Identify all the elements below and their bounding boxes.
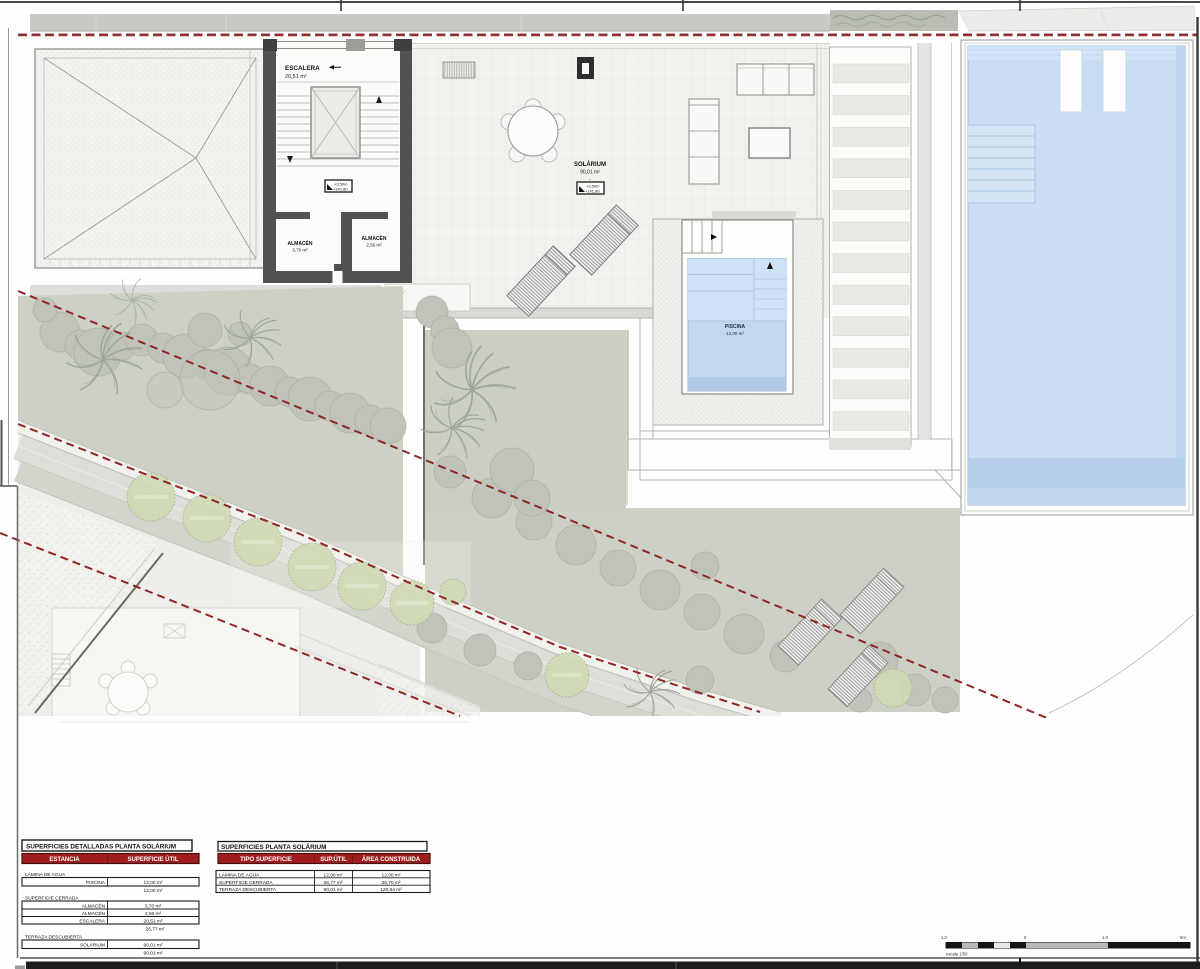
svg-text:ESTANCIA: ESTANCIA: [49, 857, 80, 863]
svg-text:LÁMINA DE AGUA: LÁMINA DE AGUA: [219, 871, 260, 878]
svg-text:90,01 m²: 90,01 m²: [324, 887, 343, 893]
svg-text:1,0: 1,0: [1102, 935, 1108, 940]
svg-text:SUPERFICIES DETALLADAS PLANTA: SUPERFICIES DETALLADAS PLANTA SOLÁRIUM: [26, 842, 176, 851]
svg-text:26,77 m²: 26,77 m²: [324, 880, 343, 886]
svg-text:TERRAZA DESCUBIERTA: TERRAZA DESCUBIERTA: [219, 887, 277, 893]
svg-text:SUPERFICIE ÚTIL: SUPERFICIE ÚTIL: [127, 856, 178, 863]
svg-text:2,56 m²: 2,56 m²: [145, 911, 162, 917]
svg-text:12,00 m²: 12,00 m²: [324, 872, 343, 878]
svg-text:12,00 m²: 12,00 m²: [144, 888, 163, 894]
svg-text:90,01 m²: 90,01 m²: [580, 170, 600, 176]
svg-text:ALMACÉN: ALMACÉN: [362, 234, 387, 242]
svg-text:ALMACÉN: ALMACÉN: [82, 903, 106, 910]
svg-text:+141,80: +141,80: [585, 189, 600, 194]
svg-text:12,00 m²: 12,00 m²: [144, 880, 163, 886]
svg-text:SUPERFICIES PLANTA SOLÁRIUM: SUPERFICIES PLANTA SOLÁRIUM: [221, 842, 326, 851]
svg-text:5m: 5m: [1180, 935, 1186, 940]
svg-text:PISCINA: PISCINA: [725, 324, 746, 330]
svg-text:ESCALERA: ESCALERA: [285, 65, 320, 72]
svg-text:90,01 m²: 90,01 m²: [144, 951, 163, 957]
svg-text:2,56 m²: 2,56 m²: [366, 243, 382, 248]
svg-text:SOLÁRIUM: SOLÁRIUM: [574, 161, 606, 168]
svg-text:1,0: 1,0: [941, 935, 947, 940]
svg-text:PISCINA: PISCINA: [86, 880, 106, 886]
svg-text:SUP.ÚTIL: SUP.ÚTIL: [320, 856, 347, 863]
svg-text:ESCALERA: ESCALERA: [79, 919, 105, 925]
svg-text:26,77 m²: 26,77 m²: [146, 927, 165, 933]
svg-text:35,70 m²: 35,70 m²: [382, 880, 401, 886]
svg-text:120,84 m²: 120,84 m²: [380, 887, 402, 893]
svg-text:12,00 m²: 12,00 m²: [726, 331, 744, 336]
svg-text:escala 1/50: escala 1/50: [946, 952, 968, 957]
svg-text:3,70 m²: 3,70 m²: [145, 904, 162, 910]
svg-text:SUPERFICIE CERRADA: SUPERFICIE CERRADA: [219, 880, 273, 886]
svg-text:20,51 m²: 20,51 m²: [285, 74, 307, 80]
svg-text:TIPO SUPERFICIE: TIPO SUPERFICIE: [240, 857, 292, 863]
svg-text:SOLÁRIUM: SOLÁRIUM: [80, 942, 105, 949]
svg-text:ÁREA CONSTRUIDA: ÁREA CONSTRUIDA: [362, 856, 421, 863]
svg-text:3,70 m²: 3,70 m²: [292, 248, 308, 253]
svg-text:+141,80: +141,80: [333, 187, 348, 192]
svg-text:ALMACÉN: ALMACÉN: [288, 239, 313, 247]
svg-text:20,51 m²: 20,51 m²: [144, 919, 163, 925]
svg-text:90,01 m²: 90,01 m²: [144, 943, 163, 949]
svg-text:ALMACÉN: ALMACÉN: [82, 910, 106, 917]
svg-text:12,00 m²: 12,00 m²: [382, 872, 401, 878]
